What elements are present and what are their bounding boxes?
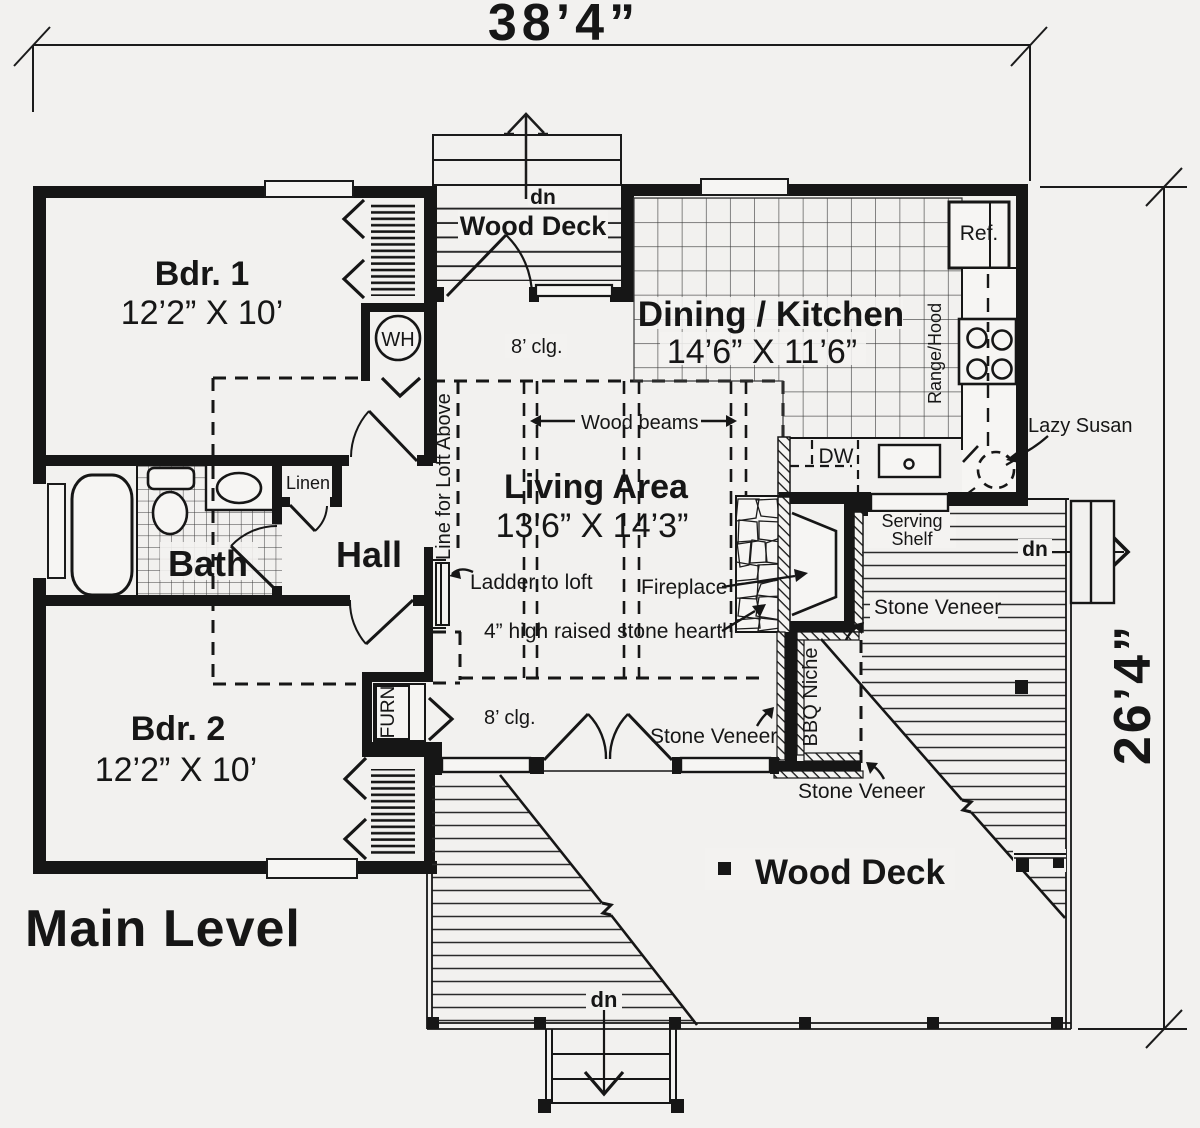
svg-text:Hall: Hall xyxy=(336,534,402,575)
svg-text:dn: dn xyxy=(530,186,556,209)
svg-text:Ladder to loft: Ladder to loft xyxy=(470,571,593,594)
svg-text:Bdr. 1: Bdr. 1 xyxy=(155,255,249,293)
svg-text:Lazy Susan: Lazy Susan xyxy=(1028,415,1133,437)
svg-text:12’2” X 10’: 12’2” X 10’ xyxy=(95,751,258,789)
svg-text:Line for Loft Above: Line for Loft Above xyxy=(433,393,455,560)
svg-text:38’4”: 38’4” xyxy=(488,0,640,52)
svg-text:Stone Veneer: Stone Veneer xyxy=(798,780,925,803)
svg-text:Dining / Kitchen: Dining / Kitchen xyxy=(638,295,904,334)
svg-text:dn: dn xyxy=(591,987,618,1012)
svg-text:BBQ Niche: BBQ Niche xyxy=(800,648,822,747)
svg-text:Bdr. 2: Bdr. 2 xyxy=(131,710,225,748)
svg-text:dn: dn xyxy=(1022,538,1048,561)
svg-text:Wood Deck: Wood Deck xyxy=(460,211,608,241)
svg-text:DW: DW xyxy=(819,445,854,468)
svg-text:Ref.: Ref. xyxy=(960,222,999,245)
svg-text:Living Area: Living Area xyxy=(504,468,689,506)
svg-text:FURN: FURN xyxy=(378,686,399,739)
svg-text:26’4”: 26’4” xyxy=(1104,623,1162,765)
svg-text:Wood Deck: Wood Deck xyxy=(755,853,945,892)
svg-text:Stone Veneer: Stone Veneer xyxy=(650,725,777,748)
svg-text:Main Level: Main Level xyxy=(25,900,301,958)
svg-text:14’6” X 11’6”: 14’6” X 11’6” xyxy=(667,333,857,371)
svg-text:WH: WH xyxy=(381,329,414,351)
svg-text:Linen: Linen xyxy=(286,473,330,493)
svg-text:8’ clg.: 8’ clg. xyxy=(511,336,563,358)
svg-text:13’6” X 14’3”: 13’6” X 14’3” xyxy=(496,507,689,545)
svg-text:8’ clg.: 8’ clg. xyxy=(484,707,536,729)
svg-text:Wood beams: Wood beams xyxy=(581,412,698,434)
svg-text:Range/Hood: Range/Hood xyxy=(925,303,945,404)
svg-text:Stone Veneer: Stone Veneer xyxy=(874,596,1001,619)
svg-text:Serving: Serving xyxy=(881,511,942,531)
svg-text:4” high raised stone hearth: 4” high raised stone hearth xyxy=(484,620,734,643)
svg-text:Fireplace: Fireplace xyxy=(641,576,727,599)
svg-text:12’2” X 10’: 12’2” X 10’ xyxy=(121,294,284,332)
